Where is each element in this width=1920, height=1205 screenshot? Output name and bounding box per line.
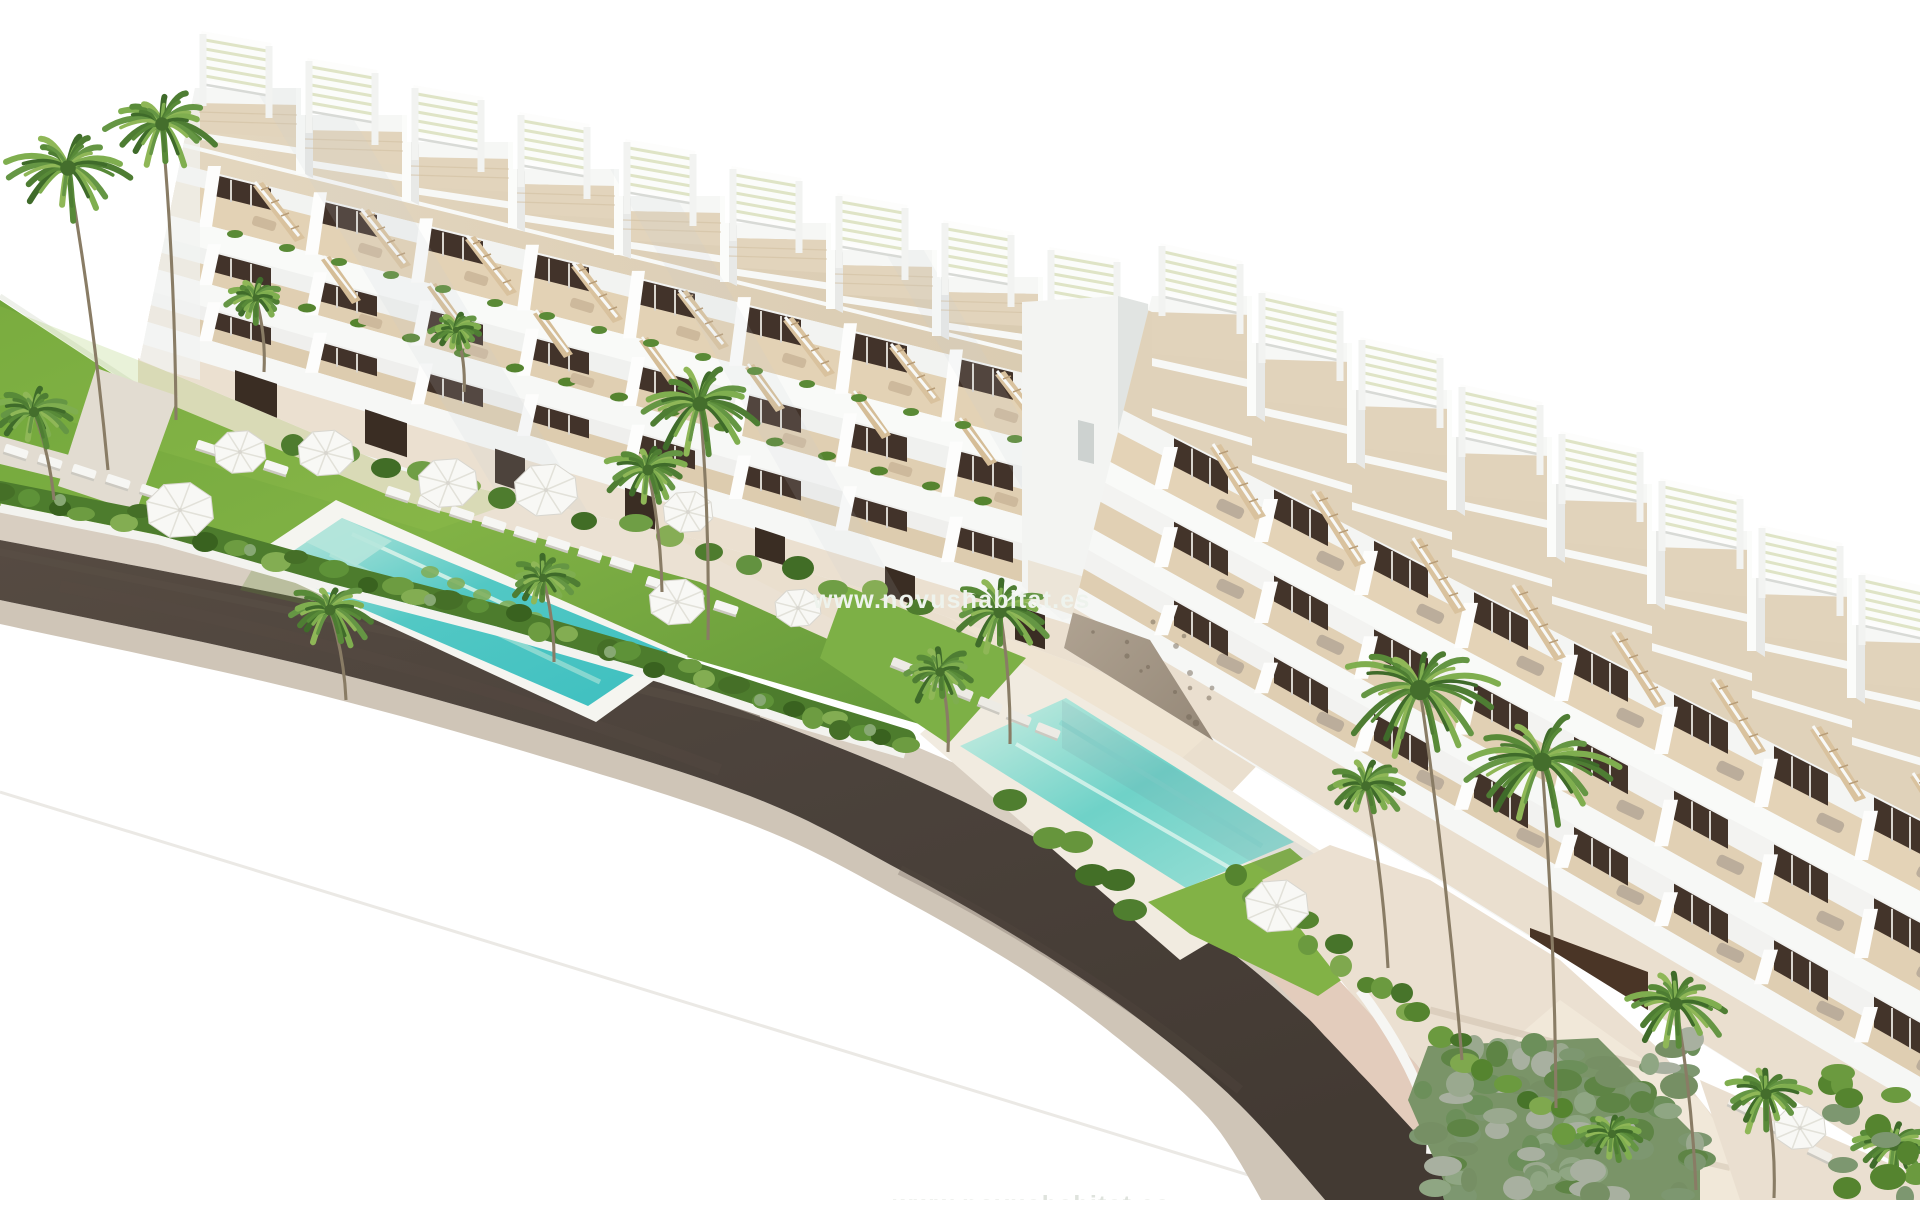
svg-text:www.novushabitat.es: www.novushabitat.es (892, 1191, 1170, 1200)
svg-text:www.novushabitat.es: www.novushabitat.es (812, 586, 1090, 614)
